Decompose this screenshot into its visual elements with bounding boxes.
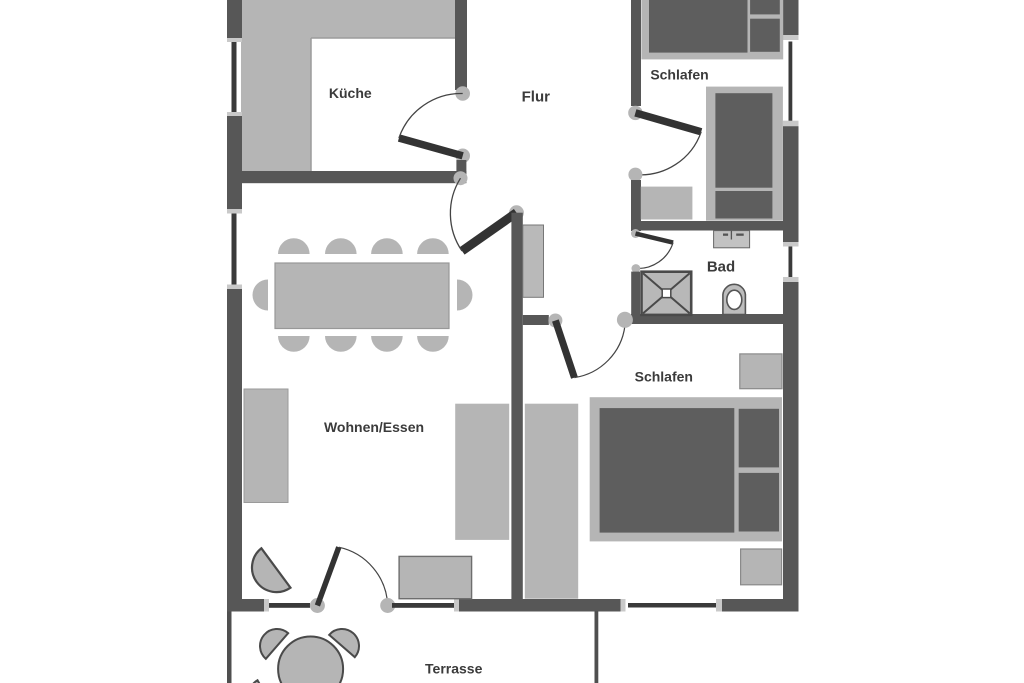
svg-text:Terrasse: Terrasse xyxy=(425,661,483,677)
svg-text:Schlafen: Schlafen xyxy=(650,67,708,83)
svg-text:Schlafen: Schlafen xyxy=(635,368,693,384)
svg-text:Wohnen/Essen: Wohnen/Essen xyxy=(324,419,424,435)
svg-text:Küche: Küche xyxy=(329,85,372,101)
svg-text:Bad: Bad xyxy=(707,259,735,276)
svg-text:Flur: Flur xyxy=(522,89,550,106)
